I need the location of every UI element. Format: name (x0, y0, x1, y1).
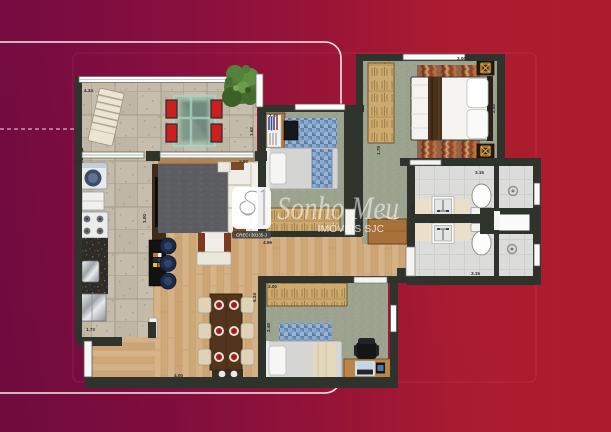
svg-text:1.73: 1.73 (86, 327, 95, 332)
svg-text:1.00: 1.00 (142, 214, 147, 223)
svg-text:1.30: 1.30 (410, 229, 415, 238)
svg-text:4.00: 4.00 (174, 373, 183, 378)
svg-text:5.34: 5.34 (252, 293, 257, 302)
svg-text:4.99: 4.99 (263, 240, 272, 245)
svg-text:3.15: 3.15 (471, 271, 480, 276)
svg-text:CRECI 30135-J: CRECI 30135-J (236, 233, 267, 238)
svg-text:Sonho Meu: Sonho Meu (277, 191, 399, 227)
svg-text:2.49: 2.49 (269, 113, 278, 118)
svg-text:2.50: 2.50 (239, 159, 248, 164)
svg-text:1.39: 1.39 (410, 205, 415, 214)
svg-text:3.00: 3.00 (457, 56, 466, 61)
svg-text:1.79: 1.79 (376, 146, 381, 155)
svg-text:4.34: 4.34 (84, 88, 93, 93)
svg-text:1.70: 1.70 (74, 159, 83, 164)
svg-text:3.00: 3.00 (268, 284, 277, 289)
svg-text:3.15: 3.15 (475, 170, 484, 175)
svg-text:1.62: 1.62 (249, 127, 254, 136)
svg-text:2.45: 2.45 (491, 104, 496, 113)
svg-text:4.35: 4.35 (75, 242, 80, 251)
svg-text:IMÓVEIS SJC: IMÓVEIS SJC (318, 222, 385, 235)
svg-text:2.48: 2.48 (266, 323, 271, 332)
